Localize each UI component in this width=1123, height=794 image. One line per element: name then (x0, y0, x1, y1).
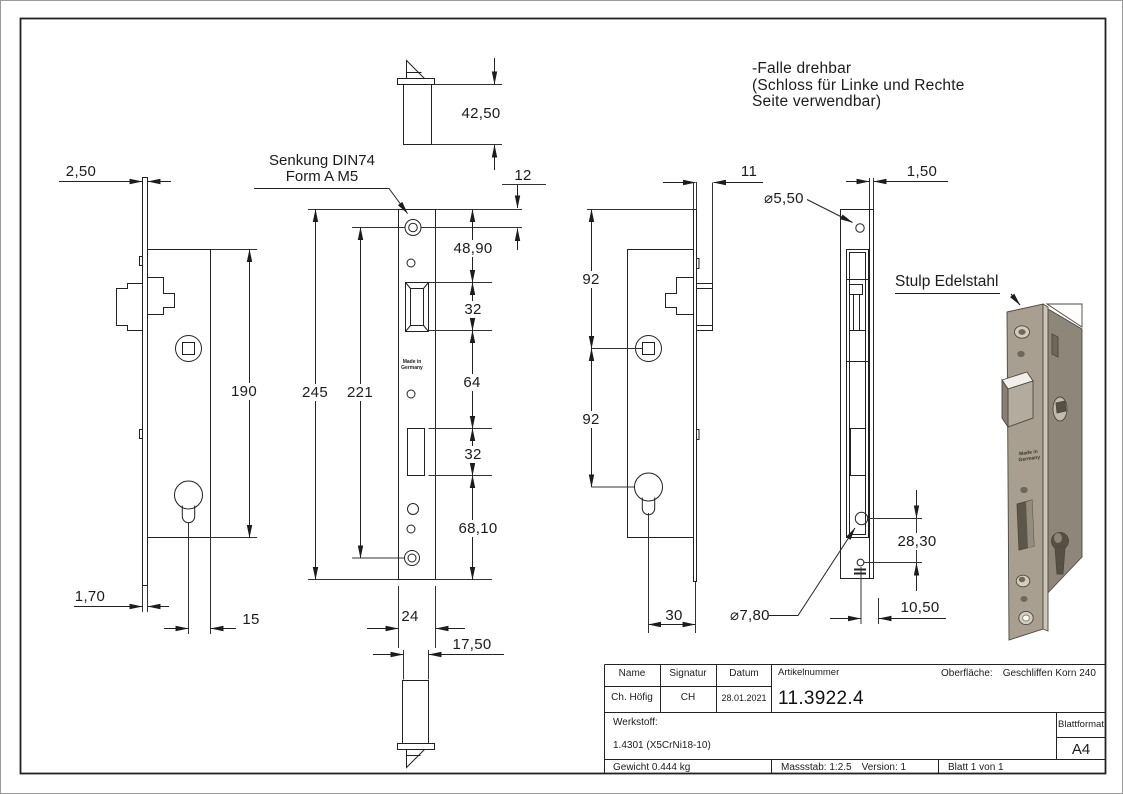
spindle-square (183, 343, 195, 355)
dim-label-1-50: 1,50 (907, 163, 937, 180)
side-guide-mark (1052, 334, 1058, 357)
dim-label-64: 64 (460, 374, 483, 391)
cylinder-hole-round (175, 481, 203, 509)
dim-label-17-50: 17,50 (452, 636, 491, 653)
stulp-leader (1011, 294, 1020, 305)
titleblock-header-artikelnummer: Artikelnummer (778, 667, 839, 678)
titleblock-datum-value: 28.01.2021 (721, 693, 766, 703)
latch-profile (666, 278, 713, 331)
faceplate-edge-outline (140, 178, 148, 586)
countersunk-hole-bottom-inner (408, 554, 416, 562)
countersunk-hole-top-inner (409, 223, 418, 232)
ext-lines (399, 586, 436, 680)
titleblock-werkstoff-label: Werkstoff: (613, 717, 658, 728)
small-hole-2 (407, 390, 415, 398)
latch-profile (117, 278, 175, 331)
small-hole-1 (407, 259, 415, 267)
lock-body-outline (148, 250, 211, 538)
dim-label-24: 24 (401, 608, 418, 625)
view-isometric-3d (1002, 304, 1082, 640)
stamp-marks (854, 570, 866, 574)
made-in-germany-stamp-front: Made in Germany (401, 360, 423, 371)
dim-label-32b: 32 (461, 446, 484, 463)
dim-label-190: 190 (228, 383, 260, 400)
view-side-left (59, 178, 257, 635)
side-cylinder-stem (1055, 547, 1065, 574)
top-screw-hole (856, 224, 864, 232)
dim-label-30: 30 (665, 607, 682, 624)
dim-label-48-90: 48,90 (450, 240, 495, 257)
dim-label-28-30: 28,30 (894, 533, 939, 550)
faceplate-edge-sliver (1043, 304, 1048, 631)
side-cylinder-highlight (1054, 533, 1062, 543)
drawing-frame (21, 19, 1106, 774)
titleblock-artikelnummer-value: 11.3922.4 (778, 688, 864, 710)
senkung-line-1: Senkung DIN74 (269, 153, 375, 169)
titleblock-oberflaeche: Oberfläche:Geschliffen Korn 240 (941, 668, 1096, 679)
dia-7-80-leader (769, 528, 855, 616)
latch-opening (406, 283, 429, 332)
view-bottom (367, 586, 504, 768)
side-follower-square (1056, 401, 1066, 413)
hole-small-3 (1021, 596, 1028, 602)
note-line-1: -Falle drehbar (752, 61, 965, 78)
countersunk-hole-bottom-outer (405, 551, 420, 566)
dim-label-12: 12 (514, 167, 531, 184)
ext-lines (143, 250, 258, 635)
dim-label-68-10: 68,10 (455, 520, 500, 537)
note-line-2: (Schloss für Linke und Rechte (752, 78, 965, 95)
deadbolt-slot (851, 429, 866, 476)
hole-countersunk-bottom-inner (1023, 615, 1030, 621)
title-block-lines (605, 665, 1106, 774)
faceplate-bottom-outline (398, 744, 435, 750)
hole-small-2 (1020, 487, 1027, 493)
dim-label-32a: 32 (461, 301, 484, 318)
dim-label-15: 15 (242, 611, 259, 628)
dim-label-221: 221 (344, 384, 376, 401)
oberflaeche-label: Oberfläche: (941, 668, 993, 679)
body-top-outline (404, 85, 432, 145)
dim-label-92b: 92 (579, 411, 602, 428)
senkung-line-2: Form A M5 (269, 169, 375, 185)
dim-label-42-50: 42,50 (461, 105, 500, 122)
stamp-line-2: Germany (401, 366, 423, 372)
titleblock-werkstoff-value: 1.4301 (X5CrNi18-10) (613, 740, 711, 751)
titleblock-signatur-value: CH (681, 692, 695, 703)
dim-label-1-70: 1,70 (75, 588, 105, 605)
faceplate-edge-outline (694, 210, 700, 582)
deadbolt-opening (408, 429, 425, 476)
faceplate-top-outline (398, 79, 435, 85)
ext-lines (308, 185, 546, 580)
latch-triangle-bottom (407, 750, 425, 768)
faceplate-front-face (1007, 304, 1043, 640)
dim-label-92a: 92 (579, 271, 602, 288)
hole-countersunk-mid-inner (1019, 577, 1025, 582)
titleblock-blattformat-label: Blattformat (1058, 719, 1104, 730)
titleblock-massstab: Massstab: 1:2.5Version: 1 (781, 762, 906, 773)
note-falle-drehbar: -Falle drehbar (Schloss für Linke und Re… (752, 61, 965, 111)
countersunk-hole-top-outer (405, 220, 421, 236)
hole-small-1 (1017, 351, 1024, 357)
dim-label-11: 11 (741, 163, 757, 180)
titleblock-blattformat-value: A4 (1072, 741, 1090, 758)
small-hole-3 (408, 504, 419, 515)
spindle-follower (176, 336, 202, 362)
body-bottom-outline (403, 681, 429, 744)
stulp-callout: Stulp Edelstahl (895, 273, 1000, 294)
dim-label-245: 245 (299, 384, 331, 401)
senkung-callout: Senkung DIN74 Form A M5 (269, 153, 375, 185)
massstab-value: Massstab: 1:2.5 (781, 762, 852, 773)
titleblock-gewicht: Gewicht 0.444 kg (613, 762, 690, 773)
dim-label-dia-5-50: ⌀5,50 (764, 189, 804, 207)
latch-triangle (407, 61, 425, 79)
oberflaeche-value: Geschliffen Korn 240 (1003, 668, 1096, 679)
titleblock-header-name: Name (619, 668, 646, 679)
note-line-3: Seite verwendbar) (752, 94, 965, 111)
view-side-right (587, 182, 855, 633)
titleblock-header-signatur: Signatur (669, 668, 706, 679)
spindle-square (643, 343, 655, 355)
dim-label-2-50: 2,50 (66, 163, 96, 180)
view-front (254, 185, 546, 580)
technical-drawing-page: -Falle drehbar (Schloss für Linke und Re… (0, 0, 1123, 794)
titleblock-blatt: Blatt 1 von 1 (948, 762, 1004, 773)
dim-label-dia-7-80: ⌀7,80 (730, 606, 770, 624)
titleblock-name-value: Ch. Höfig (611, 692, 653, 703)
dia-5-50-leader (807, 200, 853, 223)
version-value: Version: 1 (862, 762, 906, 773)
latch-left-face (1002, 380, 1008, 427)
dim-label-10-50: 10,50 (900, 599, 939, 616)
cylinder-hole-round (635, 473, 663, 501)
small-hole-4 (407, 525, 415, 533)
hole-countersunk-top-inner (1018, 329, 1025, 335)
small-hole (857, 559, 864, 566)
faceplate-outline (399, 210, 436, 580)
view-rear (830, 178, 948, 624)
titleblock-header-datum: Datum (729, 668, 758, 679)
ext-lines (861, 178, 922, 624)
